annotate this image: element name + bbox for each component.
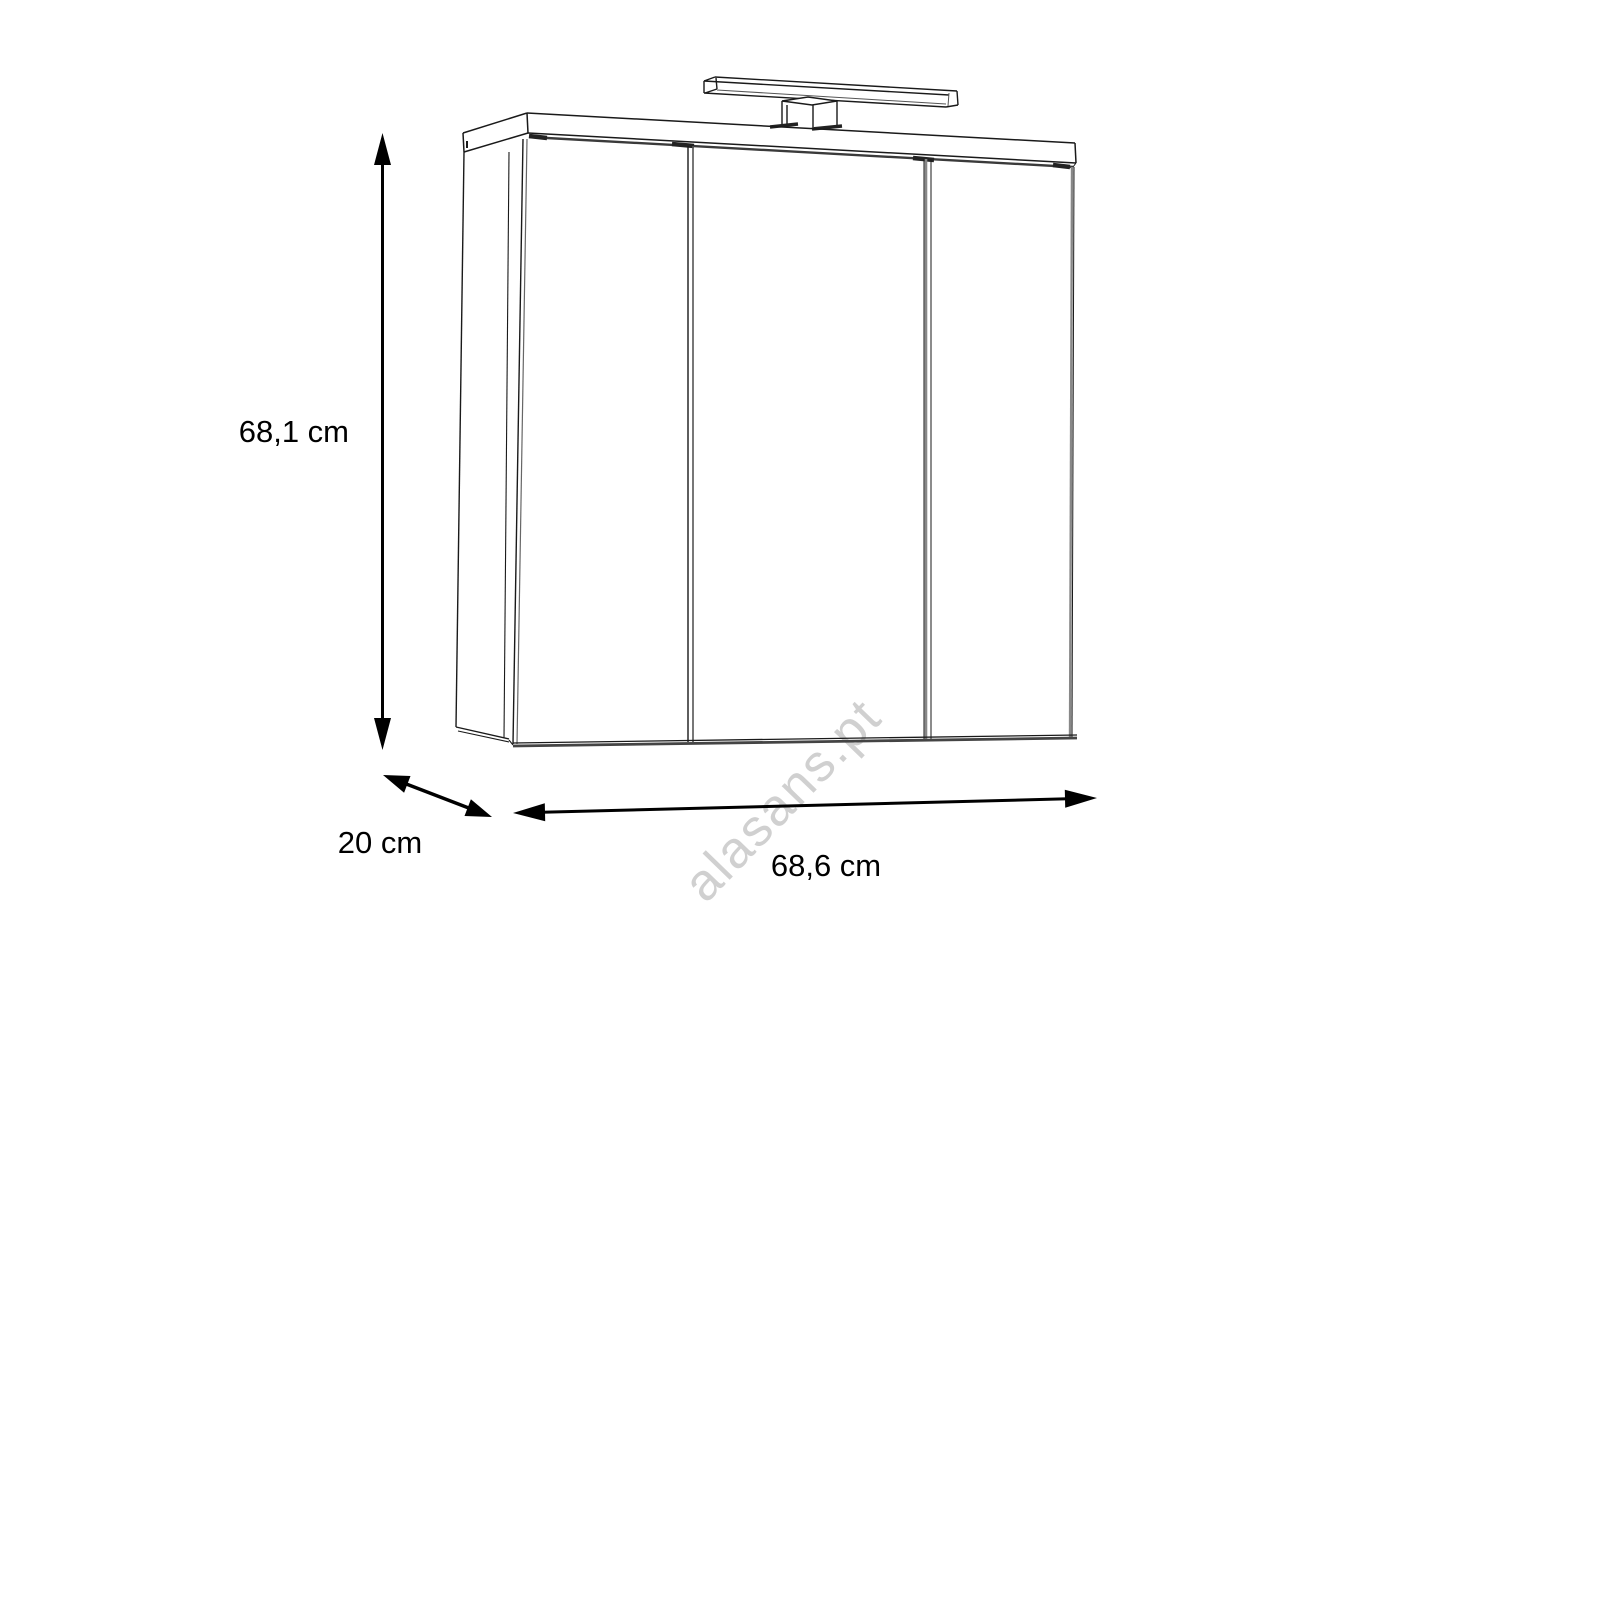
height-dimension-label: 68,1 cm — [239, 414, 349, 449]
cabinet-dimension-diagram: alasans.pt — [0, 0, 1600, 1600]
depth-dimension-label: 20 cm — [338, 825, 422, 860]
diagram-canvas: alasans.pt — [0, 0, 1600, 1600]
width-dimension-label: 68,6 cm — [771, 848, 881, 883]
